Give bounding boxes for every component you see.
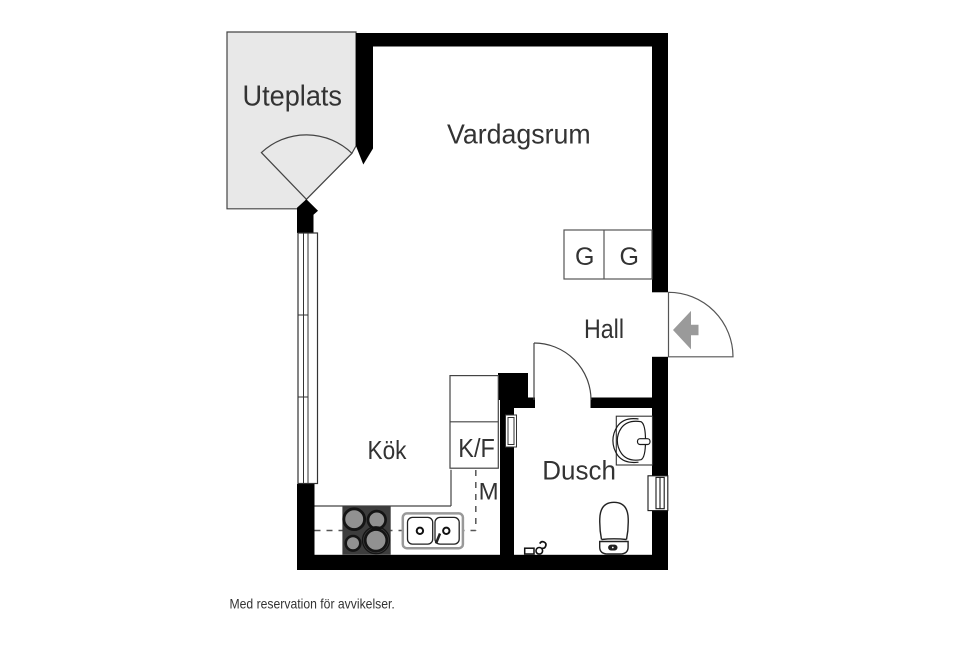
svg-text:Dusch: Dusch xyxy=(542,456,616,486)
svg-text:Kök: Kök xyxy=(368,435,408,465)
svg-text:Hall: Hall xyxy=(584,314,624,344)
svg-text:K/F: K/F xyxy=(458,433,495,463)
svg-text:Uteplats: Uteplats xyxy=(243,81,343,113)
svg-text:M: M xyxy=(479,478,499,505)
svg-text:G: G xyxy=(620,243,639,271)
svg-text:Vardagsrum: Vardagsrum xyxy=(447,118,591,149)
svg-text:Med reservation för avvikelser: Med reservation för avvikelser. xyxy=(230,596,395,612)
svg-text:G: G xyxy=(575,243,594,271)
